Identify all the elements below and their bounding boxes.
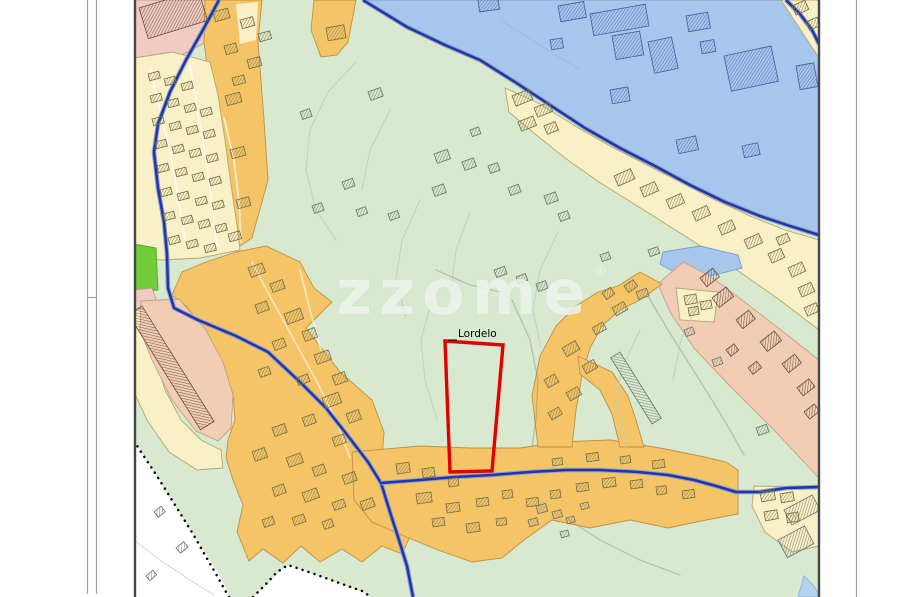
building — [586, 452, 599, 462]
building — [764, 510, 778, 521]
building — [656, 486, 667, 495]
building — [620, 456, 631, 464]
building — [396, 462, 410, 474]
building — [682, 489, 695, 499]
building — [552, 458, 563, 466]
building — [550, 490, 561, 499]
building — [502, 490, 513, 499]
building — [550, 38, 564, 50]
building — [686, 12, 710, 32]
building — [700, 300, 712, 310]
map-image[interactable] — [0, 0, 900, 597]
building — [448, 478, 459, 487]
place-label-lordelo: Lordelo — [458, 329, 497, 340]
building — [326, 25, 346, 41]
building — [432, 517, 445, 527]
building — [446, 502, 460, 513]
map-layers — [128, 0, 820, 597]
building — [630, 479, 643, 489]
building — [466, 522, 480, 533]
building — [422, 467, 435, 478]
building — [576, 482, 589, 492]
building — [416, 492, 432, 504]
building — [688, 306, 699, 316]
building — [700, 40, 716, 54]
building — [684, 294, 697, 305]
building — [760, 490, 776, 502]
building — [602, 477, 616, 488]
page: Lordelo zzome® — [0, 0, 900, 597]
zone-bright-green-patch — [134, 244, 158, 292]
building — [496, 518, 507, 526]
building — [612, 31, 644, 59]
building — [476, 497, 489, 507]
building — [652, 459, 665, 469]
building — [610, 87, 630, 104]
building — [780, 492, 794, 503]
building — [796, 63, 818, 90]
